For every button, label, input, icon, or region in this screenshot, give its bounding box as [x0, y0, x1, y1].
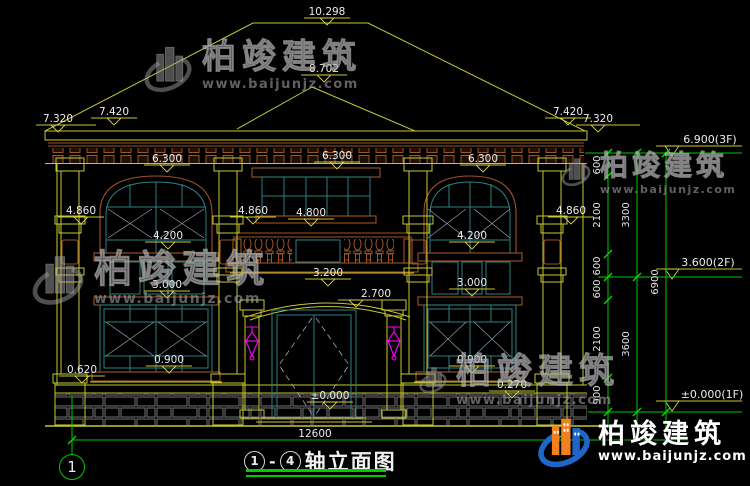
svg-text:0.900: 0.900: [154, 354, 184, 366]
cad-elevation-drawing: 10.298 8.702 7.320 7.420 7.420 7.320 6.3…: [0, 0, 750, 486]
elevation-drawing-canvas: 10.298 8.702 7.320 7.420 7.420 7.320 6.3…: [0, 0, 750, 486]
dimension-chains: 600 2100 600 600 2100 900 3300 3600 6900: [585, 149, 742, 428]
svg-text:±0.000: ±0.000: [311, 390, 350, 402]
svg-text:3.600(2F): 3.600(2F): [681, 256, 734, 269]
floor-level-markers: 6.900(3F) 3.600(2F) ±0.000(1F): [656, 133, 743, 411]
svg-text:3.000: 3.000: [457, 277, 487, 289]
svg-text:4.200: 4.200: [457, 230, 487, 242]
window-2f-left: [94, 176, 218, 261]
chain-dim: 2100: [592, 202, 603, 227]
svg-text:10.298: 10.298: [309, 6, 346, 18]
level-marker-0900-right: 0.900: [449, 354, 495, 373]
svg-text:6.900(3F): 6.900(3F): [683, 133, 736, 146]
level-marker-3200: 3.200: [305, 267, 351, 286]
svg-text:12600: 12600: [298, 428, 331, 440]
level-marker-3000-right: 3.000: [449, 277, 495, 296]
window-1f-left: [90, 297, 222, 382]
level-marker-3000-left: 3.000: [144, 279, 190, 298]
level-marker-4860-left: 4.860: [58, 205, 104, 224]
svg-text:3.000: 3.000: [152, 279, 182, 291]
axis-range-dash: -: [269, 452, 276, 471]
center-bay-roof-hips: [237, 87, 415, 131]
svg-text:4.860: 4.860: [66, 205, 96, 217]
level-marker-7320-left: 7.320: [36, 113, 96, 132]
title-underline: [246, 469, 386, 472]
svg-text:6.300: 6.300: [152, 153, 182, 165]
level-marker-0900-left: 0.900: [146, 354, 192, 373]
level-marker-7320-right: 7.320: [576, 113, 640, 132]
svg-text:4.860: 4.860: [556, 205, 586, 217]
svg-text:±0.000(1F): ±0.000(1F): [681, 388, 744, 401]
svg-text:0.620: 0.620: [67, 364, 97, 376]
svg-text:1: 1: [67, 458, 77, 476]
title-underline-2: [246, 475, 386, 477]
svg-text:7.320: 7.320: [583, 113, 613, 125]
svg-text:2.700: 2.700: [361, 288, 391, 300]
svg-text:3.200: 3.200: [313, 267, 343, 279]
svg-text:4.200: 4.200: [153, 230, 183, 242]
svg-text:7.420: 7.420: [553, 106, 583, 118]
wall-lamp-right: [386, 327, 402, 360]
floor-level-2f: 3.600(2F): [656, 256, 742, 279]
chain-dim: 2100: [592, 326, 603, 351]
svg-text:6.300: 6.300: [468, 153, 498, 165]
chain-dim: 3600: [621, 331, 632, 356]
window-1f-right: [414, 297, 526, 382]
svg-text:4.800: 4.800: [296, 207, 326, 219]
chain-dim: 3300: [621, 202, 632, 227]
level-marker-10298: 10.298: [304, 6, 350, 25]
svg-text:7.320: 7.320: [43, 113, 73, 125]
chain-dim: 900: [592, 385, 603, 404]
chain-dim: 6900: [650, 269, 661, 294]
svg-text:0.900: 0.900: [457, 354, 487, 366]
level-marker-8702: 8.702: [301, 63, 347, 82]
level-marker-7420-left: 7.420: [91, 106, 137, 125]
wall-lamp-left: [244, 327, 260, 360]
chain-dim: 600: [592, 256, 603, 275]
chain-dim: 600: [592, 155, 603, 174]
svg-text:0.270: 0.270: [497, 379, 527, 391]
svg-text:8.702: 8.702: [309, 63, 339, 75]
overall-width-dimension: 12600: [68, 428, 688, 448]
svg-text:7.420: 7.420: [99, 106, 129, 118]
eaves-cornice-band: [45, 131, 587, 385]
chain-dim: 600: [592, 279, 603, 298]
svg-text:4.860: 4.860: [238, 205, 268, 217]
svg-text:6.300: 6.300: [322, 150, 352, 162]
floor-level-1f: ±0.000(1F): [656, 388, 743, 411]
window-2f-right: [418, 176, 522, 261]
level-marker-4860-right: 4.860: [548, 205, 594, 224]
